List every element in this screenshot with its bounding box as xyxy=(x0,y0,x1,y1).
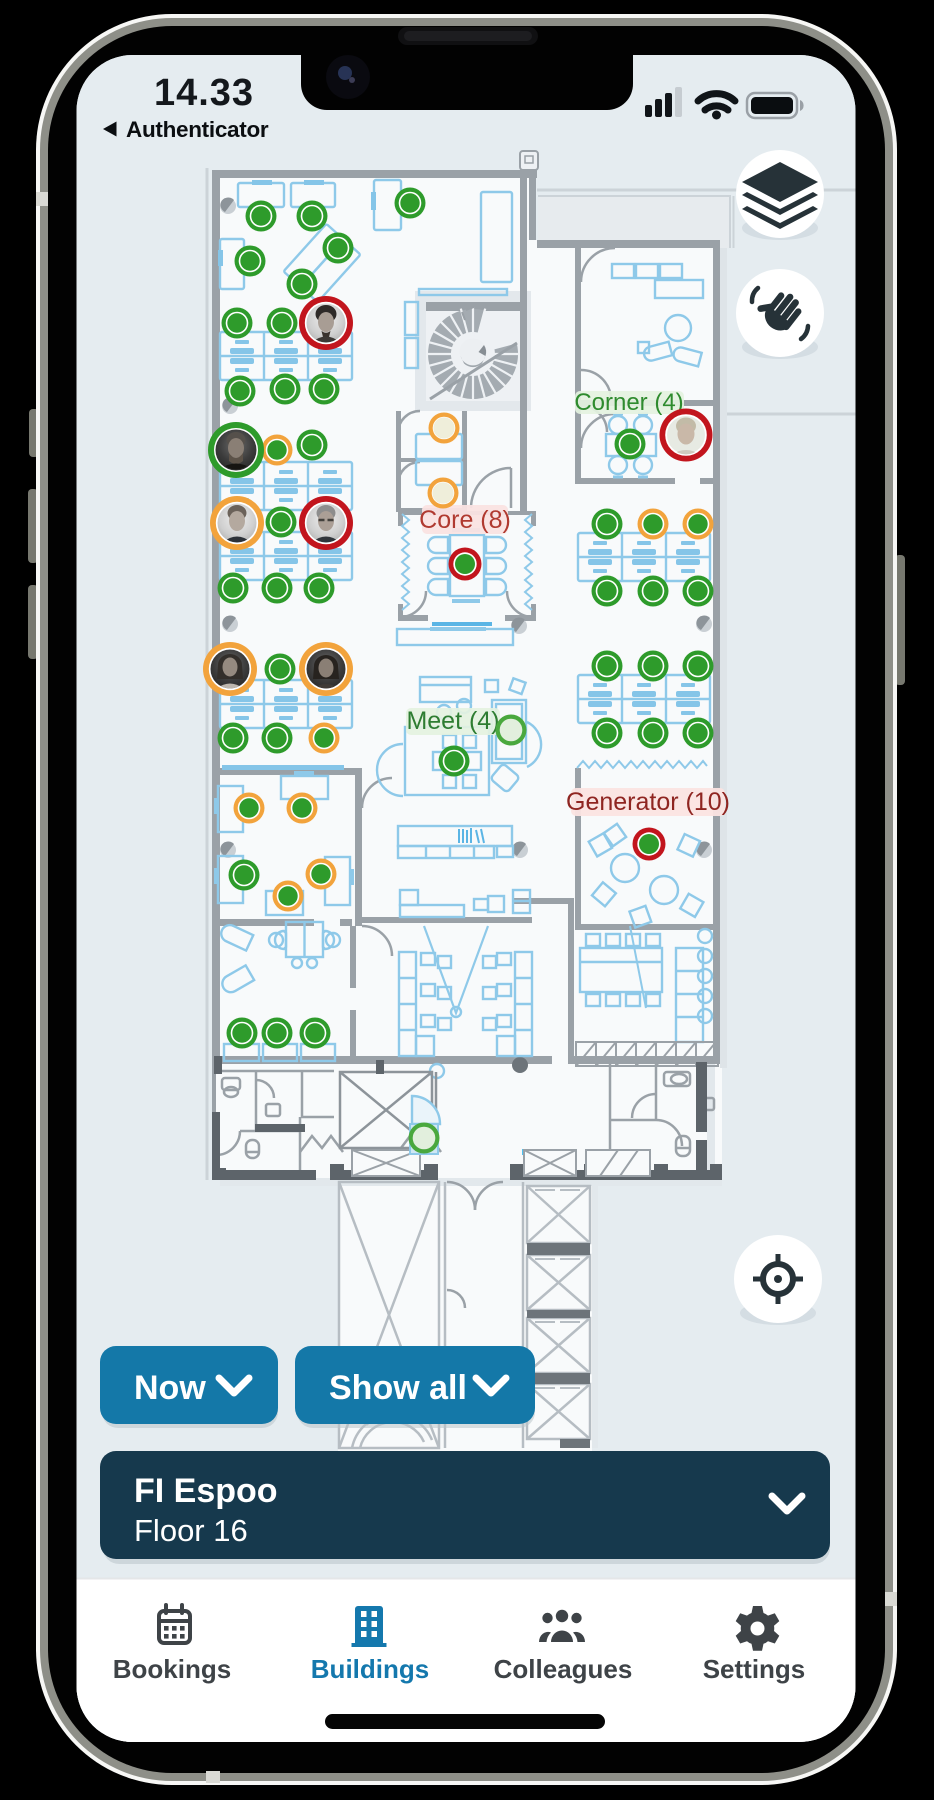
svg-text:Now: Now xyxy=(134,1369,206,1407)
svg-text:Show all: Show all xyxy=(329,1369,467,1407)
svg-text:Floor 16: Floor 16 xyxy=(134,1513,248,1548)
svg-text:FI Espoo: FI Espoo xyxy=(134,1472,278,1510)
svg-text:Authenticator: Authenticator xyxy=(126,117,269,142)
svg-text:Corner (4): Corner (4) xyxy=(574,389,683,416)
svg-text:14.33: 14.33 xyxy=(154,72,254,114)
svg-text:Generator (10): Generator (10) xyxy=(566,788,730,816)
svg-text:Core (8): Core (8) xyxy=(419,506,511,534)
svg-text:Bookings: Bookings xyxy=(113,1654,231,1684)
svg-text:Buildings: Buildings xyxy=(311,1654,429,1684)
svg-text:Colleagues: Colleagues xyxy=(494,1654,633,1684)
svg-text:Meet (4): Meet (4) xyxy=(406,707,499,735)
svg-text:Settings: Settings xyxy=(703,1654,806,1684)
